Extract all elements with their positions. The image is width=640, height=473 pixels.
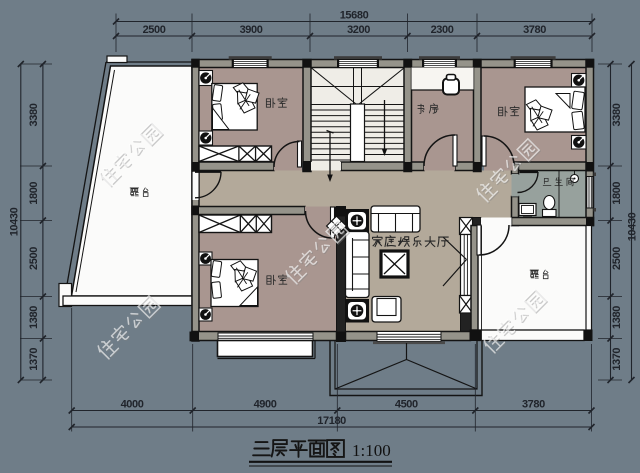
svg-text:2500: 2500 <box>611 247 623 270</box>
svg-text:3200: 3200 <box>347 24 370 36</box>
svg-text:1800: 1800 <box>28 182 40 205</box>
svg-text:1370: 1370 <box>28 348 40 371</box>
svg-text:1370: 1370 <box>611 348 623 371</box>
svg-text:3780: 3780 <box>523 24 546 36</box>
svg-text:4900: 4900 <box>254 399 277 411</box>
svg-text:17180: 17180 <box>317 415 346 427</box>
svg-text:3380: 3380 <box>28 103 40 126</box>
svg-text:1380: 1380 <box>28 306 40 329</box>
svg-text:2300: 2300 <box>431 24 454 36</box>
svg-text:1800: 1800 <box>611 182 623 205</box>
svg-text:4500: 4500 <box>395 399 418 411</box>
svg-text:10430: 10430 <box>9 207 21 236</box>
svg-text:10430: 10430 <box>627 212 639 241</box>
svg-text:3900: 3900 <box>240 24 263 36</box>
svg-text:1:100: 1:100 <box>352 441 391 460</box>
svg-text:3780: 3780 <box>522 399 545 411</box>
svg-text:15680: 15680 <box>340 10 369 22</box>
svg-text:2500: 2500 <box>143 24 166 36</box>
svg-text:4000: 4000 <box>121 399 144 411</box>
svg-text:2500: 2500 <box>28 247 40 270</box>
svg-text:1380: 1380 <box>611 306 623 329</box>
svg-text:3380: 3380 <box>611 103 623 126</box>
